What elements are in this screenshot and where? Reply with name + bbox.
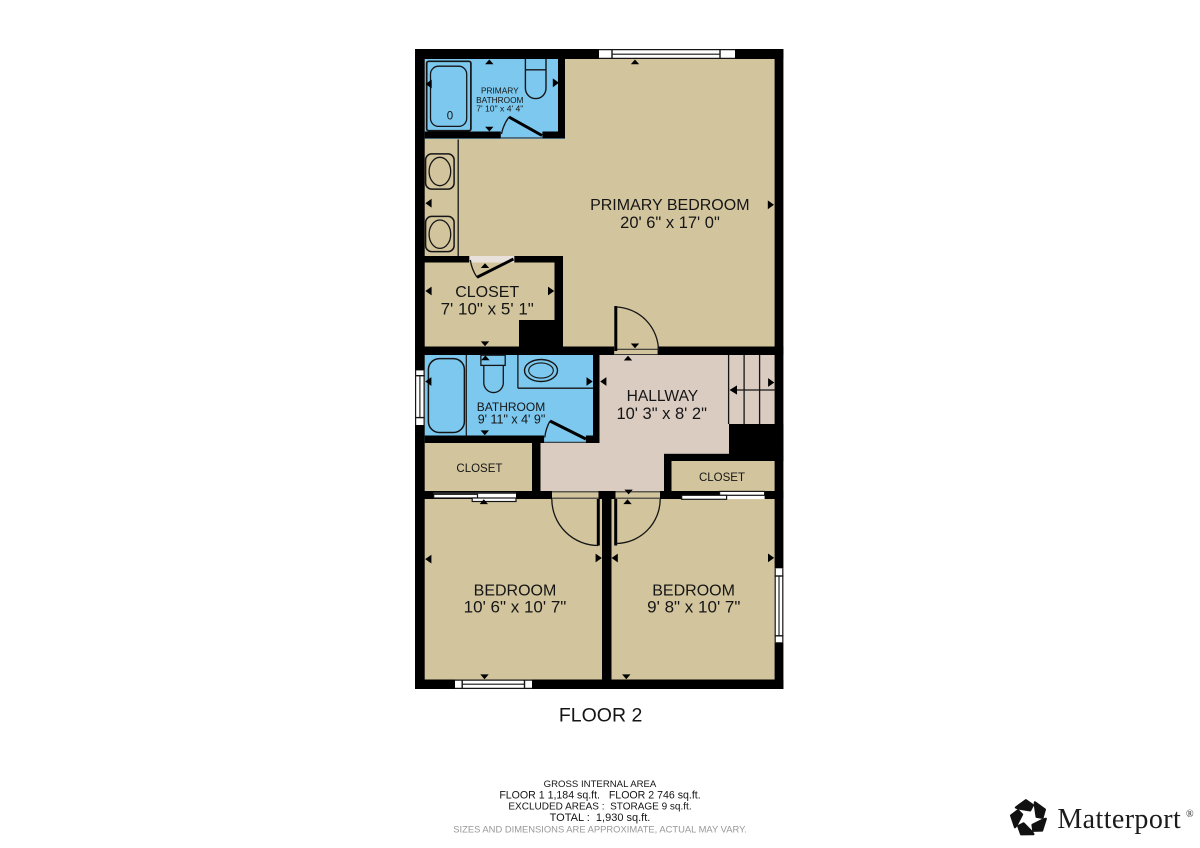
svg-text:7' 10" x 5' 1": 7' 10" x 5' 1" (441, 299, 534, 318)
svg-text:TOTAL : 1,930 sq.ft.: TOTAL : 1,930 sq.ft. (550, 812, 651, 824)
svg-text:10' 6" x 10' 7": 10' 6" x 10' 7" (464, 598, 567, 617)
svg-text:PRIMARY BEDROOM: PRIMARY BEDROOM (590, 197, 749, 214)
svg-text:20' 6" x 17' 0": 20' 6" x 17' 0" (620, 214, 720, 232)
svg-text:9' 8" x 10' 7": 9' 8" x 10' 7" (647, 598, 740, 617)
svg-text:GROSS INTERNAL AREA: GROSS INTERNAL AREA (544, 779, 657, 790)
svg-text:Matterport: Matterport (1057, 804, 1181, 835)
svg-text:PRIMARY: PRIMARY (481, 85, 519, 95)
svg-text:9' 11" x 4' 9": 9' 11" x 4' 9" (478, 412, 546, 426)
svg-text:HALLWAY: HALLWAY (627, 388, 699, 405)
svg-text:0: 0 (447, 111, 453, 123)
svg-text:7' 10" x 4' 4": 7' 10" x 4' 4" (476, 103, 523, 113)
svg-text:CLOSET: CLOSET (699, 472, 745, 484)
svg-text:FLOOR 1 1,184 sq.ft. FLOOR 2: FLOOR 1 1,184 sq.ft. FLOOR 2 746 sq.ft. (499, 790, 700, 802)
svg-text:10' 3" x 8' 2": 10' 3" x 8' 2" (616, 405, 707, 423)
svg-text:CLOSET: CLOSET (456, 463, 502, 475)
svg-text:®: ® (1186, 809, 1194, 820)
svg-text:FLOOR 2: FLOOR 2 (559, 704, 642, 726)
svg-text:SIZES AND DIMENSIONS ARE APPRO: SIZES AND DIMENSIONS ARE APPROXIMATE, AC… (453, 824, 746, 835)
